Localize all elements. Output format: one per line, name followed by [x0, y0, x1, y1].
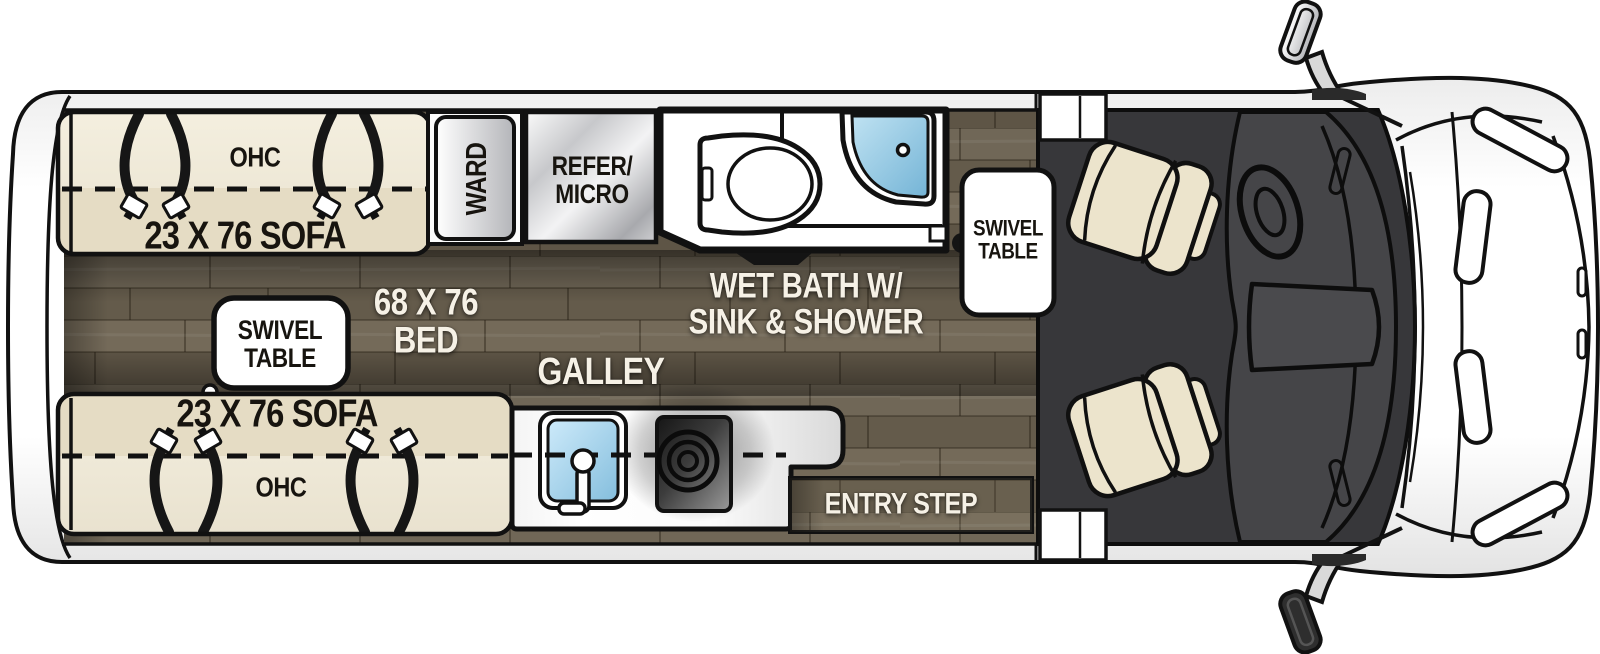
label-refer-micro: REFER/ MICRO — [552, 152, 633, 208]
label-ohc-bottom: OHC — [255, 472, 306, 501]
center-console — [1249, 284, 1379, 370]
grille-slot — [1578, 268, 1586, 296]
stove-icon — [657, 417, 731, 511]
label-ohc-top: OHC — [229, 142, 280, 171]
bath-latch — [930, 226, 946, 241]
toilet-icon — [700, 135, 820, 233]
label-entry-step: ENTRY STEP — [825, 488, 978, 519]
label-swivel-table-front: SWIVEL TABLE — [973, 217, 1043, 264]
label-bed: 68 X 76 BED — [374, 284, 478, 361]
dashboard — [1227, 112, 1396, 542]
label-sofa-top: 23 X 76 SOFA — [144, 217, 345, 258]
shower-drain — [898, 145, 909, 156]
wet-bath — [660, 110, 946, 265]
label-wet-bath: WET BATH W/ SINK & SHOWER — [689, 269, 924, 342]
grille-slot — [1578, 330, 1586, 358]
label-galley: GALLEY — [538, 353, 665, 393]
label-sofa-bottom: 23 X 76 SOFA — [176, 395, 377, 436]
label-ward: WARD — [462, 143, 492, 216]
rv-floorplan: OHC 23 X 76 SOFA WARD REFER/ MICRO WET B… — [0, 0, 1600, 654]
label-swivel-table-rear: SWIVEL TABLE — [238, 316, 322, 372]
